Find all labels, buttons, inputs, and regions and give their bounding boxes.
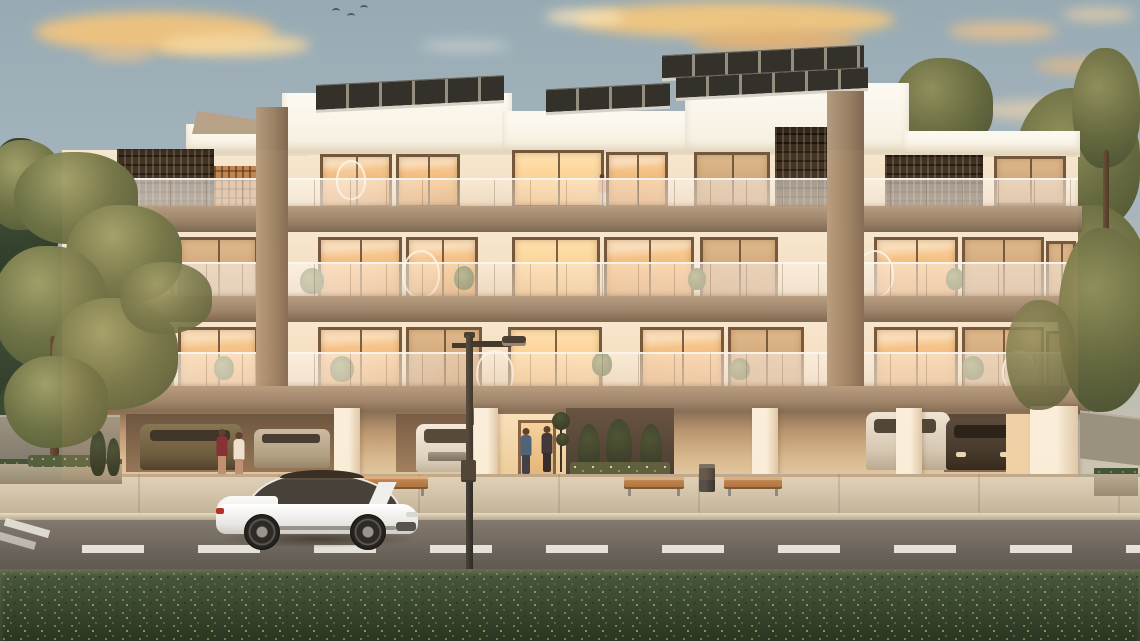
lamp-head bbox=[502, 336, 526, 346]
car-wheel bbox=[244, 514, 280, 550]
sidewalk-step-shadow bbox=[0, 474, 1140, 477]
right-lobby bbox=[1006, 414, 1030, 474]
garage-pillar bbox=[896, 408, 922, 478]
pine-foliage bbox=[1006, 300, 1076, 410]
cloud bbox=[88, 50, 152, 60]
headlight bbox=[956, 452, 966, 457]
car-windshield bbox=[424, 429, 470, 443]
bench[interactable] bbox=[624, 477, 684, 489]
garage-pillar bbox=[1030, 406, 1078, 480]
bird bbox=[332, 8, 340, 14]
boundary-wall-right bbox=[1080, 410, 1140, 465]
pine-foliage bbox=[120, 262, 212, 334]
person-red-dress bbox=[216, 429, 228, 475]
facade-pier bbox=[256, 107, 288, 388]
glass-balustrade bbox=[62, 262, 1078, 299]
car-headlight bbox=[406, 512, 418, 517]
balcony-slab bbox=[56, 206, 1082, 232]
cypress-shrub bbox=[90, 430, 106, 476]
cloud bbox=[545, 10, 625, 24]
car-windshield bbox=[954, 425, 1010, 438]
glass-balustrade bbox=[62, 352, 1078, 389]
roof-parapet bbox=[902, 131, 1080, 157]
bird bbox=[347, 13, 355, 19]
cypress-shrub bbox=[107, 438, 120, 476]
topiary-ball bbox=[552, 412, 570, 430]
scene-canvas bbox=[0, 0, 1140, 641]
person-blue-suit bbox=[520, 428, 532, 474]
litter-bin[interactable] bbox=[699, 464, 715, 492]
pine-foliage bbox=[4, 356, 108, 448]
cloud bbox=[1062, 8, 1134, 21]
cloud bbox=[948, 22, 1058, 40]
curb bbox=[0, 513, 1140, 520]
cloud bbox=[420, 40, 510, 52]
person-dark-suit bbox=[541, 426, 553, 472]
bench[interactable] bbox=[724, 477, 782, 489]
garage-pillar bbox=[474, 408, 498, 478]
garage-pillar bbox=[334, 408, 360, 478]
lamp-junction-box bbox=[461, 460, 476, 482]
car-front-intake bbox=[396, 522, 416, 531]
hedge bbox=[0, 569, 1140, 641]
flower-bed bbox=[28, 455, 94, 467]
sidewalk bbox=[0, 474, 1140, 514]
street-car-white bbox=[216, 470, 422, 552]
car-rear-window bbox=[262, 434, 320, 443]
facade-pier bbox=[827, 91, 864, 388]
car-wheel bbox=[350, 514, 386, 550]
cloud bbox=[160, 34, 310, 56]
car-grille bbox=[428, 452, 466, 461]
lamp-pole bbox=[466, 336, 473, 576]
car-roof bbox=[280, 470, 364, 478]
garage-pillar bbox=[752, 408, 778, 478]
bird bbox=[360, 5, 368, 11]
topiary-ball bbox=[556, 433, 569, 446]
planter-right bbox=[1094, 474, 1138, 496]
roof-parapet bbox=[502, 111, 690, 155]
car-taillight bbox=[216, 508, 224, 514]
